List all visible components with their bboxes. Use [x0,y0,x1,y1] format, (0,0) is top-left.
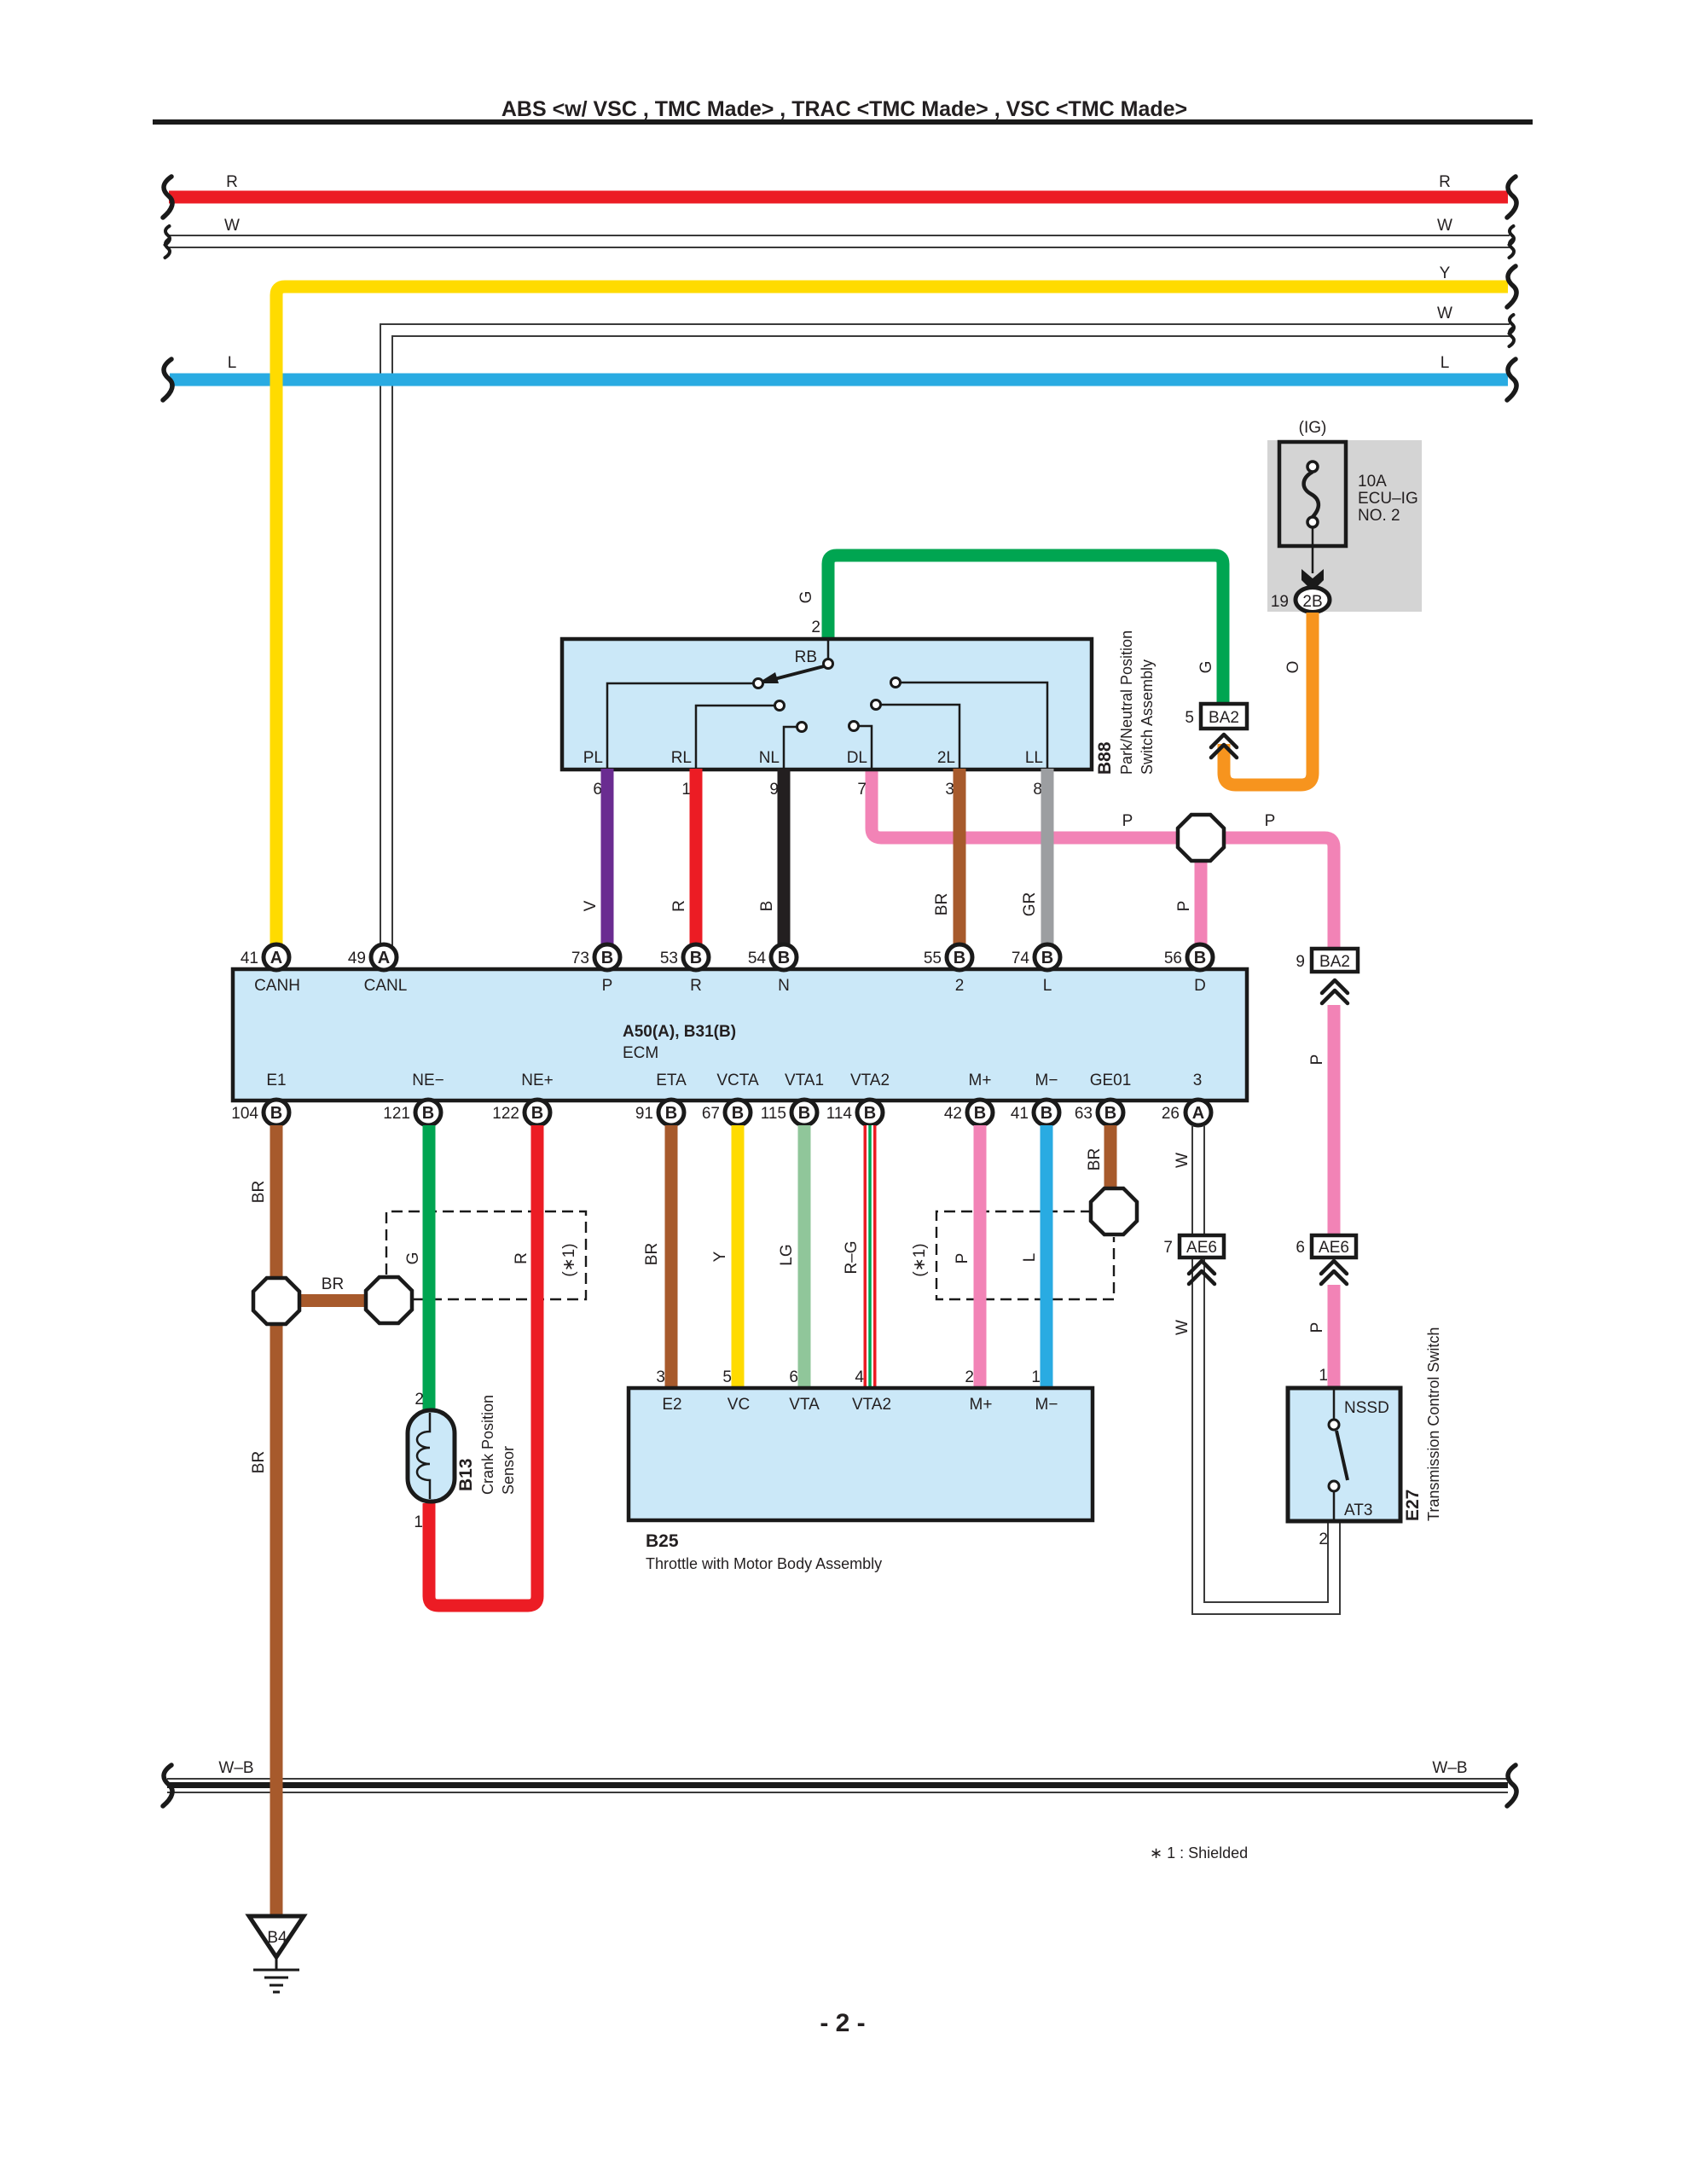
svg-text:2: 2 [811,619,820,636]
svg-text:B: B [1104,1104,1116,1123]
svg-text:A50(A), B31(B): A50(A), B31(B) [623,1023,736,1041]
svg-text:B: B [665,1104,677,1123]
svg-text:W–B: W–B [218,1759,253,1777]
svg-text:NE+: NE+ [521,1072,554,1089]
svg-text:LL: LL [1025,749,1043,767]
svg-text:NO. 2: NO. 2 [1358,507,1400,525]
svg-text:G: G [1197,661,1215,674]
svg-text:- 2 -: - 2 - [820,2009,865,2037]
svg-text:P: P [1175,901,1193,912]
svg-text:W: W [1437,305,1452,322]
svg-text:Switch Assembly: Switch Assembly [1139,659,1156,775]
svg-text:NE−: NE− [412,1072,444,1089]
svg-text:P: P [1308,1322,1326,1333]
svg-text:9: 9 [1296,953,1305,971]
svg-text:VC: VC [728,1396,750,1414]
svg-text:B: B [864,1104,876,1123]
svg-text:BR: BR [322,1275,344,1293]
svg-text:41: 41 [1011,1105,1029,1123]
svg-text:NSSD: NSSD [1344,1399,1389,1417]
svg-text:R–G: R–G [843,1240,861,1274]
svg-text:54: 54 [748,950,767,967]
svg-text:Sensor: Sensor [500,1446,517,1495]
svg-text:2: 2 [415,1391,424,1409]
svg-text:LG: LG [778,1244,796,1265]
svg-text:2L: 2L [937,749,955,767]
svg-text:B: B [954,949,965,967]
svg-text:1: 1 [681,781,691,799]
svg-text:W: W [1174,1320,1191,1335]
svg-text:2: 2 [955,977,965,995]
svg-text:L: L [1021,1253,1039,1263]
svg-text:Park/Neutral Position: Park/Neutral Position [1118,630,1135,775]
svg-text:W–B: W–B [1432,1759,1467,1777]
svg-text:Crank Position: Crank Position [479,1395,496,1495]
svg-text:3: 3 [945,781,954,799]
svg-text:104: 104 [231,1105,258,1123]
svg-text:Y: Y [1440,264,1451,282]
svg-text:1: 1 [414,1513,423,1531]
svg-text:VTA2: VTA2 [850,1072,890,1089]
svg-text:B: B [601,949,613,967]
svg-text:2B: 2B [1302,593,1322,611]
svg-text:91: 91 [635,1105,653,1123]
svg-text:ETA: ETA [656,1072,687,1089]
svg-text:R: R [670,900,688,912]
svg-text:VTA1: VTA1 [785,1072,824,1089]
svg-text:B: B [690,949,702,967]
svg-text:RB: RB [795,648,817,666]
svg-text:B25: B25 [646,1531,679,1551]
svg-text:7: 7 [857,781,867,799]
svg-text:6: 6 [789,1368,798,1386]
svg-text:VTA: VTA [789,1396,820,1414]
svg-text:19: 19 [1271,593,1289,611]
svg-text:G: G [797,591,815,604]
svg-text:56: 56 [1164,950,1182,967]
svg-text:∗ 1 : Shielded: ∗ 1 : Shielded [1150,1844,1248,1862]
svg-text:2: 2 [965,1368,974,1386]
svg-text:67: 67 [702,1105,720,1123]
svg-text:42: 42 [944,1105,962,1123]
svg-text:E27: E27 [1403,1490,1423,1521]
svg-text:Throttle with Motor Body Assem: Throttle with Motor Body Assembly [646,1555,882,1572]
svg-text:R: R [226,173,238,191]
svg-text:114: 114 [826,1105,853,1123]
svg-text:N: N [778,977,790,995]
svg-text:55: 55 [924,950,942,967]
svg-text:B88: B88 [1095,741,1115,775]
svg-text:CANH: CANH [254,977,300,995]
svg-text:VCTA: VCTA [716,1072,759,1089]
svg-text:1: 1 [1319,1367,1328,1385]
svg-text:AE6: AE6 [1186,1239,1217,1257]
svg-text:E2: E2 [662,1396,681,1414]
svg-text:122: 122 [492,1105,519,1123]
svg-text:(∗1): (∗1) [911,1243,929,1276]
svg-text:26: 26 [1162,1105,1180,1123]
svg-text:W: W [224,217,240,235]
svg-text:BA2: BA2 [1209,709,1239,727]
svg-text:VTA2: VTA2 [852,1396,891,1414]
svg-text:63: 63 [1075,1105,1093,1123]
svg-text:GE01: GE01 [1090,1072,1132,1089]
svg-text:B: B [1041,1104,1052,1123]
svg-text:41: 41 [241,950,258,967]
svg-text:L: L [1441,354,1450,372]
svg-text:L: L [1043,977,1052,995]
svg-text:B: B [778,949,790,967]
svg-text:G: G [404,1252,422,1265]
svg-text:ECM: ECM [623,1044,658,1062]
svg-text:1: 1 [1031,1368,1041,1386]
svg-text:P: P [1308,1054,1326,1066]
svg-text:M+: M+ [969,1072,992,1089]
svg-text:P: P [1122,812,1133,830]
svg-text:BR: BR [250,1181,268,1203]
svg-text:10A: 10A [1358,473,1387,491]
svg-text:AT3: AT3 [1344,1501,1372,1519]
svg-text:(∗1): (∗1) [560,1243,578,1276]
svg-text:R: R [1439,173,1451,191]
svg-text:B: B [1041,949,1053,967]
svg-text:R: R [513,1252,530,1264]
svg-text:E1: E1 [266,1072,286,1089]
svg-text:BA2: BA2 [1319,953,1350,971]
svg-text:ECU–IG: ECU–IG [1358,490,1418,508]
svg-text:A: A [270,949,282,967]
svg-text:V: V [582,900,600,911]
svg-text:8: 8 [1033,781,1042,799]
svg-text:RL: RL [671,749,692,767]
svg-text:AE6: AE6 [1319,1239,1349,1257]
svg-text:B: B [531,1104,543,1123]
svg-text:BR: BR [643,1243,661,1265]
svg-text:D: D [1194,977,1206,995]
svg-text:B4: B4 [267,1929,287,1947]
svg-text:P: P [1265,812,1276,830]
svg-text:B: B [758,901,776,912]
svg-text:BR: BR [250,1451,268,1473]
svg-text:6: 6 [593,781,602,799]
svg-text:Y: Y [711,1251,729,1262]
svg-text:7: 7 [1163,1239,1173,1257]
svg-text:B: B [974,1104,986,1123]
svg-text:Transmission Control Switch: Transmission Control Switch [1425,1327,1442,1521]
svg-text:W: W [1437,217,1452,235]
svg-text:6: 6 [1296,1239,1305,1257]
svg-text:2: 2 [1319,1531,1328,1548]
svg-text:B: B [798,1104,810,1123]
svg-text:(IG): (IG) [1299,419,1327,437]
svg-text:73: 73 [571,950,589,967]
svg-text:B13: B13 [456,1458,476,1491]
svg-text:BR: BR [1086,1148,1104,1170]
svg-text:115: 115 [761,1105,786,1123]
svg-text:9: 9 [769,781,779,799]
svg-text:121: 121 [383,1105,410,1123]
svg-text:P: P [954,1253,971,1264]
svg-text:M−: M− [1035,1396,1058,1414]
svg-text:B: B [1194,949,1206,967]
svg-text:53: 53 [660,950,678,967]
svg-text:O: O [1284,661,1302,674]
svg-text:B: B [422,1104,434,1123]
svg-text:GR: GR [1021,892,1039,917]
svg-text:M−: M− [1035,1072,1058,1089]
svg-text:74: 74 [1012,950,1030,967]
svg-text:PL: PL [583,749,603,767]
svg-text:R: R [690,977,702,995]
svg-text:B: B [732,1104,744,1123]
svg-text:49: 49 [348,950,366,967]
svg-text:3: 3 [1193,1072,1203,1089]
svg-text:3: 3 [656,1368,665,1386]
svg-text:M+: M+ [970,1396,993,1414]
svg-text:CANL: CANL [364,977,408,995]
svg-text:5: 5 [722,1368,732,1386]
svg-text:B: B [270,1104,282,1123]
svg-text:NL: NL [759,749,780,767]
svg-text:A: A [1192,1104,1204,1123]
svg-text:DL: DL [847,749,867,767]
svg-text:P: P [602,977,613,995]
svg-text:5: 5 [1185,709,1194,727]
svg-text:BR: BR [933,893,951,915]
svg-text:A: A [378,949,390,967]
svg-text:L: L [228,354,237,372]
svg-text:ABS <w/ VSC , TMC Made> , TRAC: ABS <w/ VSC , TMC Made> , TRAC <TMC Made… [501,97,1187,121]
svg-text:4: 4 [855,1368,864,1386]
svg-text:W: W [1174,1153,1191,1168]
